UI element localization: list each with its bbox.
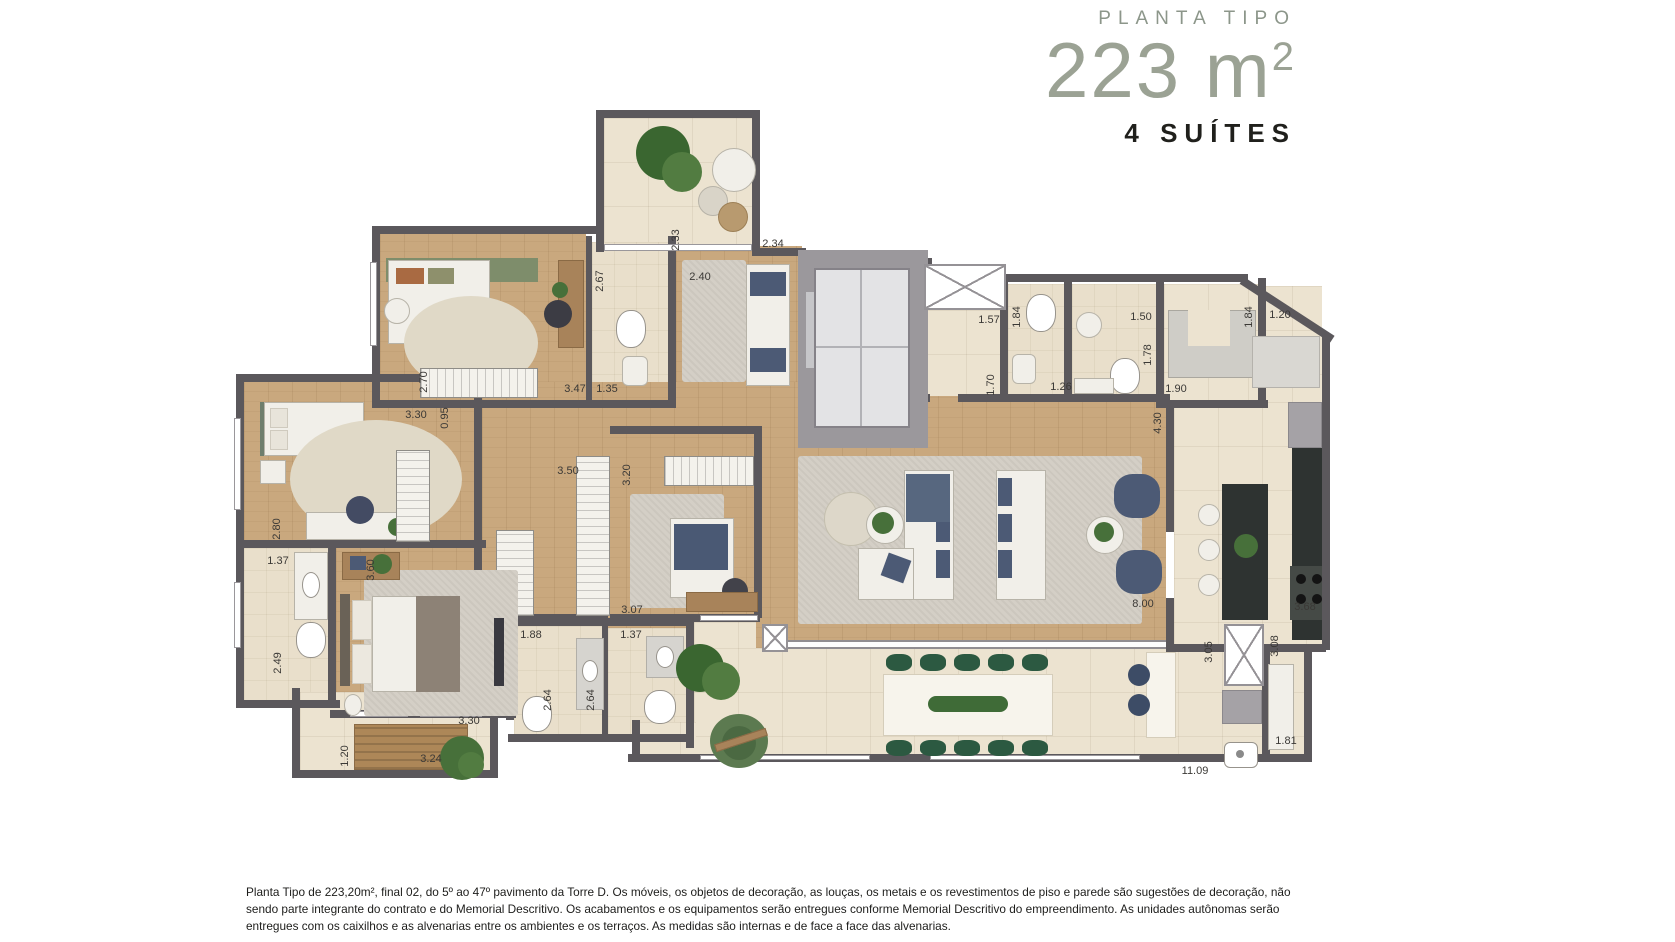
lamp [384,298,410,324]
wardrobe [420,368,538,398]
sink [302,572,320,598]
toilet [296,622,326,658]
throw-blanket [906,474,950,522]
plant [1094,522,1114,542]
shower-box [1074,378,1114,394]
dining-chair [954,740,980,756]
sink [582,660,598,682]
nightstand [260,460,286,484]
wall-segment [632,720,640,762]
headboard [340,594,350,686]
refrigerator [1288,402,1322,448]
toilet [616,310,646,348]
pillow [270,430,288,450]
burner [1296,574,1306,584]
wall-segment [1304,652,1312,758]
wall-segment [610,426,756,434]
desk-chair [346,496,374,524]
dining-chair [1022,740,1048,756]
pillow [428,268,454,284]
desk-chair [544,300,572,328]
blanket [416,596,460,692]
wall-segment [508,734,692,742]
wall-segment [372,226,604,234]
dining-chair [886,740,912,756]
counter [1268,664,1294,750]
candle [344,694,362,716]
centerpiece [928,696,1008,712]
wall-segment [752,110,760,256]
wall-segment [1000,394,1170,402]
window [700,615,758,621]
wall-segment [586,236,592,408]
wall-segment [754,426,762,618]
area-superscript: 2 [1272,35,1296,79]
sink [1012,354,1036,384]
sofa-cushion [750,348,786,372]
duct-shaft [762,624,788,652]
plant [872,512,894,534]
toilet [522,696,552,732]
elevator-door [806,292,814,368]
wall-segment [372,400,594,408]
dining-chair [954,654,980,671]
wall-segment [236,700,340,708]
dining-chair [920,740,946,756]
elevator-car [814,268,910,428]
service-shaft [1224,624,1264,686]
plant [702,662,740,700]
sofa-cushion [998,514,1012,542]
pillow [270,408,288,428]
wall-segment [1166,400,1174,532]
floor-plan-page: PLANTA TIPO 223 m2 4 SUÍTES [0,0,1675,942]
gourmet-counter [1146,652,1176,738]
wall-segment [1156,278,1164,408]
dining-chair [988,740,1014,756]
sofa-cushion [998,550,1012,578]
duct-shaft [924,264,1006,310]
wall-segment [1322,336,1330,650]
sink [656,646,674,668]
wall-segment [328,548,336,708]
dining-chair [920,654,946,671]
stool [1128,664,1150,686]
dining-chair [1022,654,1048,671]
armchair [1114,474,1160,518]
throw-blanket [674,524,728,570]
pouf [712,148,756,192]
runner-rug [682,260,746,382]
cabinet [1252,336,1320,388]
plan-element [860,270,862,426]
armchair [1116,550,1162,594]
stool [1198,574,1220,596]
disclaimer-text: Planta Tipo de 223,20m², final 02, do 5º… [246,884,1304,934]
wall-segment [1064,278,1072,402]
window [370,262,377,346]
sink [622,356,648,386]
plan-element [1188,310,1230,346]
area-value: 223 m2 [1045,30,1296,112]
living-glass-wall [762,640,1166,649]
sink [1076,312,1102,338]
closet [664,456,754,486]
basket [718,202,748,232]
wardrobe [396,450,430,542]
pillow [396,268,424,284]
dining-chair [988,654,1014,671]
plant [552,282,568,298]
desk [686,592,758,612]
toilet [1026,294,1056,332]
suites-label: 4 SUÍTES [1045,118,1296,149]
wall-segment [292,688,300,778]
pillow [352,600,372,640]
stool [1198,504,1220,526]
title-block: PLANTA TIPO 223 m2 4 SUÍTES [1045,8,1296,149]
plant [372,554,392,574]
sofa-cushion [998,478,1012,506]
sofa-cushion [750,272,786,296]
burner [1312,574,1322,584]
pillow [352,644,372,684]
wall-segment [668,236,676,408]
stool [1128,694,1150,716]
plant [458,752,484,778]
toilet [644,690,676,724]
plan-element [816,346,908,348]
window [234,582,241,648]
wall-segment [596,110,760,118]
burner [1312,594,1322,604]
terrace-door [604,244,752,251]
toilet [1110,358,1140,394]
dining-chair [886,654,912,671]
tv-panel [494,618,504,686]
stool [1198,539,1220,561]
wall-segment [490,710,498,778]
decor-box [350,556,366,570]
wall-segment [236,540,486,548]
dimension-label: 11.09 [1182,765,1209,777]
cabinet [1222,690,1262,724]
closet [576,456,610,616]
window [234,418,241,510]
burner [1296,594,1306,604]
sofa-cushion [936,550,950,578]
wall-segment [1004,274,1248,282]
wall-segment [594,400,676,408]
plant [662,152,702,192]
plan-element [1236,750,1244,758]
plant [1234,534,1258,558]
